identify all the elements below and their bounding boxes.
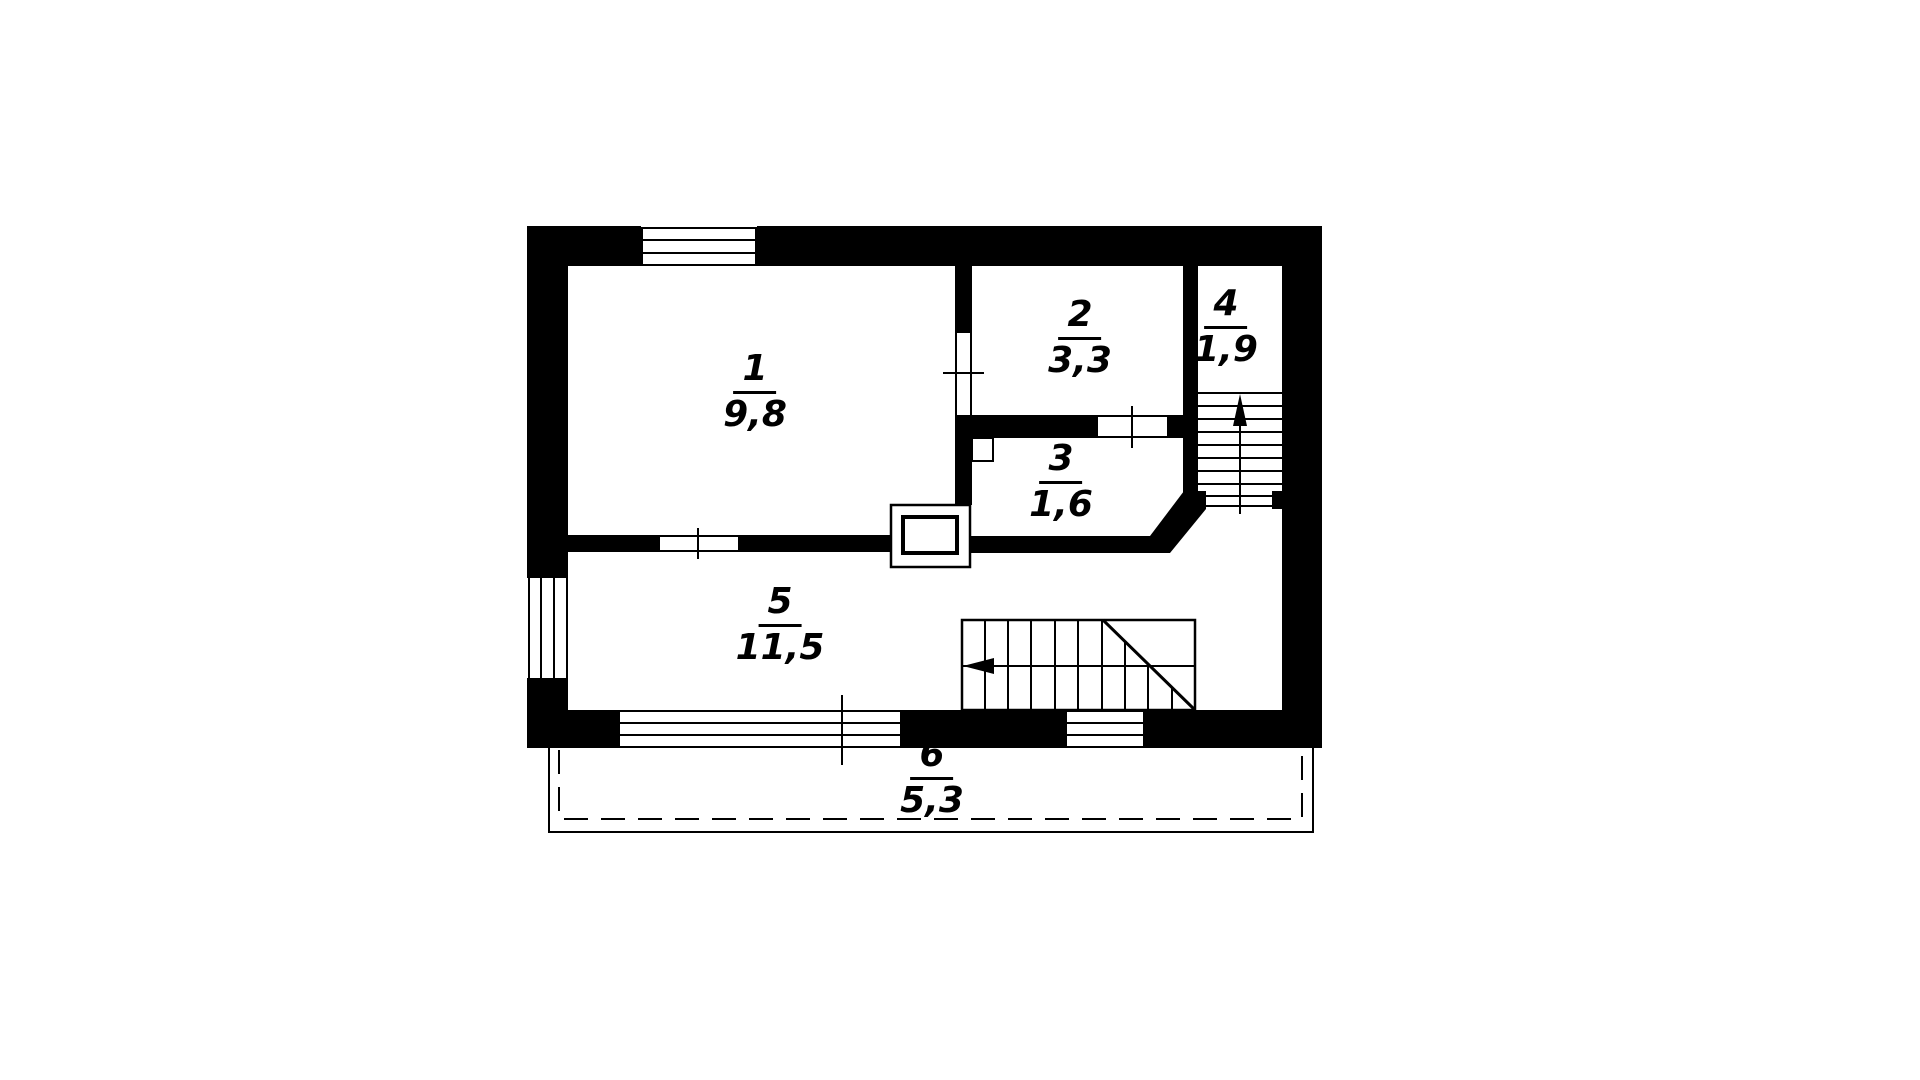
room-area: 5,3: [900, 783, 964, 819]
room-label-3: 3 1,6: [1029, 439, 1093, 523]
room-label-1: 1 9,8: [723, 349, 787, 433]
room-area: 1,9: [1194, 332, 1258, 368]
vent-notch: [972, 438, 993, 461]
room-label-2: 2 3,3: [1048, 295, 1112, 379]
floor-plan-page: 1 9,8 2 3,3 3 1,6 4 1,9 5 11,5 6 5,3: [0, 0, 1920, 1080]
room-number: 5: [758, 582, 801, 627]
left-arrow-icon: [963, 658, 994, 674]
top-wall-window: [641, 227, 757, 266]
room-area: 1,6: [1029, 487, 1093, 523]
left-wall-window: [529, 578, 567, 678]
chimney: [891, 505, 970, 567]
door-room2-room3: [1098, 406, 1167, 448]
room-number: 2: [1058, 295, 1101, 340]
room-label-4: 4 1,9: [1194, 284, 1258, 368]
opening-room1-room5: [660, 528, 738, 559]
room-number: 3: [1039, 439, 1082, 484]
room-number: 6: [910, 735, 953, 780]
bottom-wall-window-right: [1065, 710, 1145, 748]
floor-plan-drawing: [0, 0, 1920, 1080]
staircase-main: [962, 620, 1195, 710]
up-arrow-icon: [1233, 394, 1247, 426]
bottom-wall-window-left: [618, 695, 902, 765]
room-number: 1: [733, 349, 776, 394]
room-label-5: 5 11,5: [736, 582, 825, 666]
room-label-6: 6 5,3: [900, 735, 964, 819]
room-area: 3,3: [1048, 343, 1112, 379]
door-room1-room2: [943, 333, 984, 415]
room-area: 11,5: [736, 630, 825, 666]
room-area: 9,8: [723, 397, 787, 433]
room-number: 4: [1204, 284, 1247, 329]
